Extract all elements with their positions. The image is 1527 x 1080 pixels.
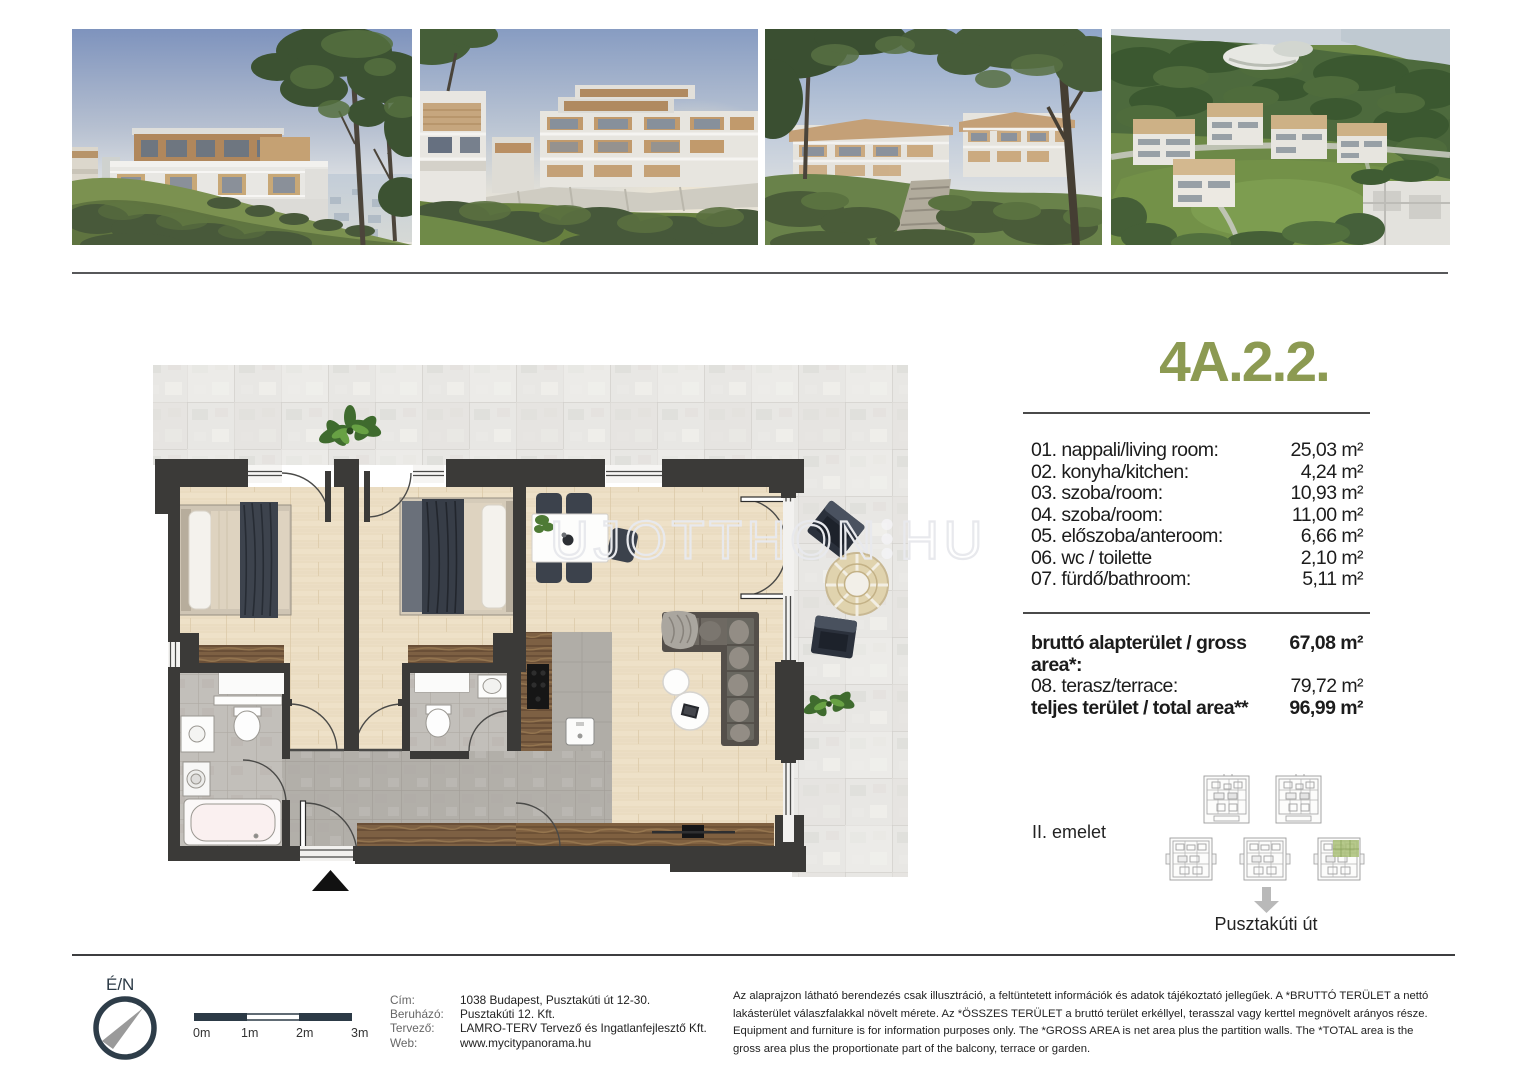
svg-text:HU: HU bbox=[900, 511, 987, 571]
svg-text:UJOTTHON: UJOTTHON bbox=[550, 511, 880, 571]
